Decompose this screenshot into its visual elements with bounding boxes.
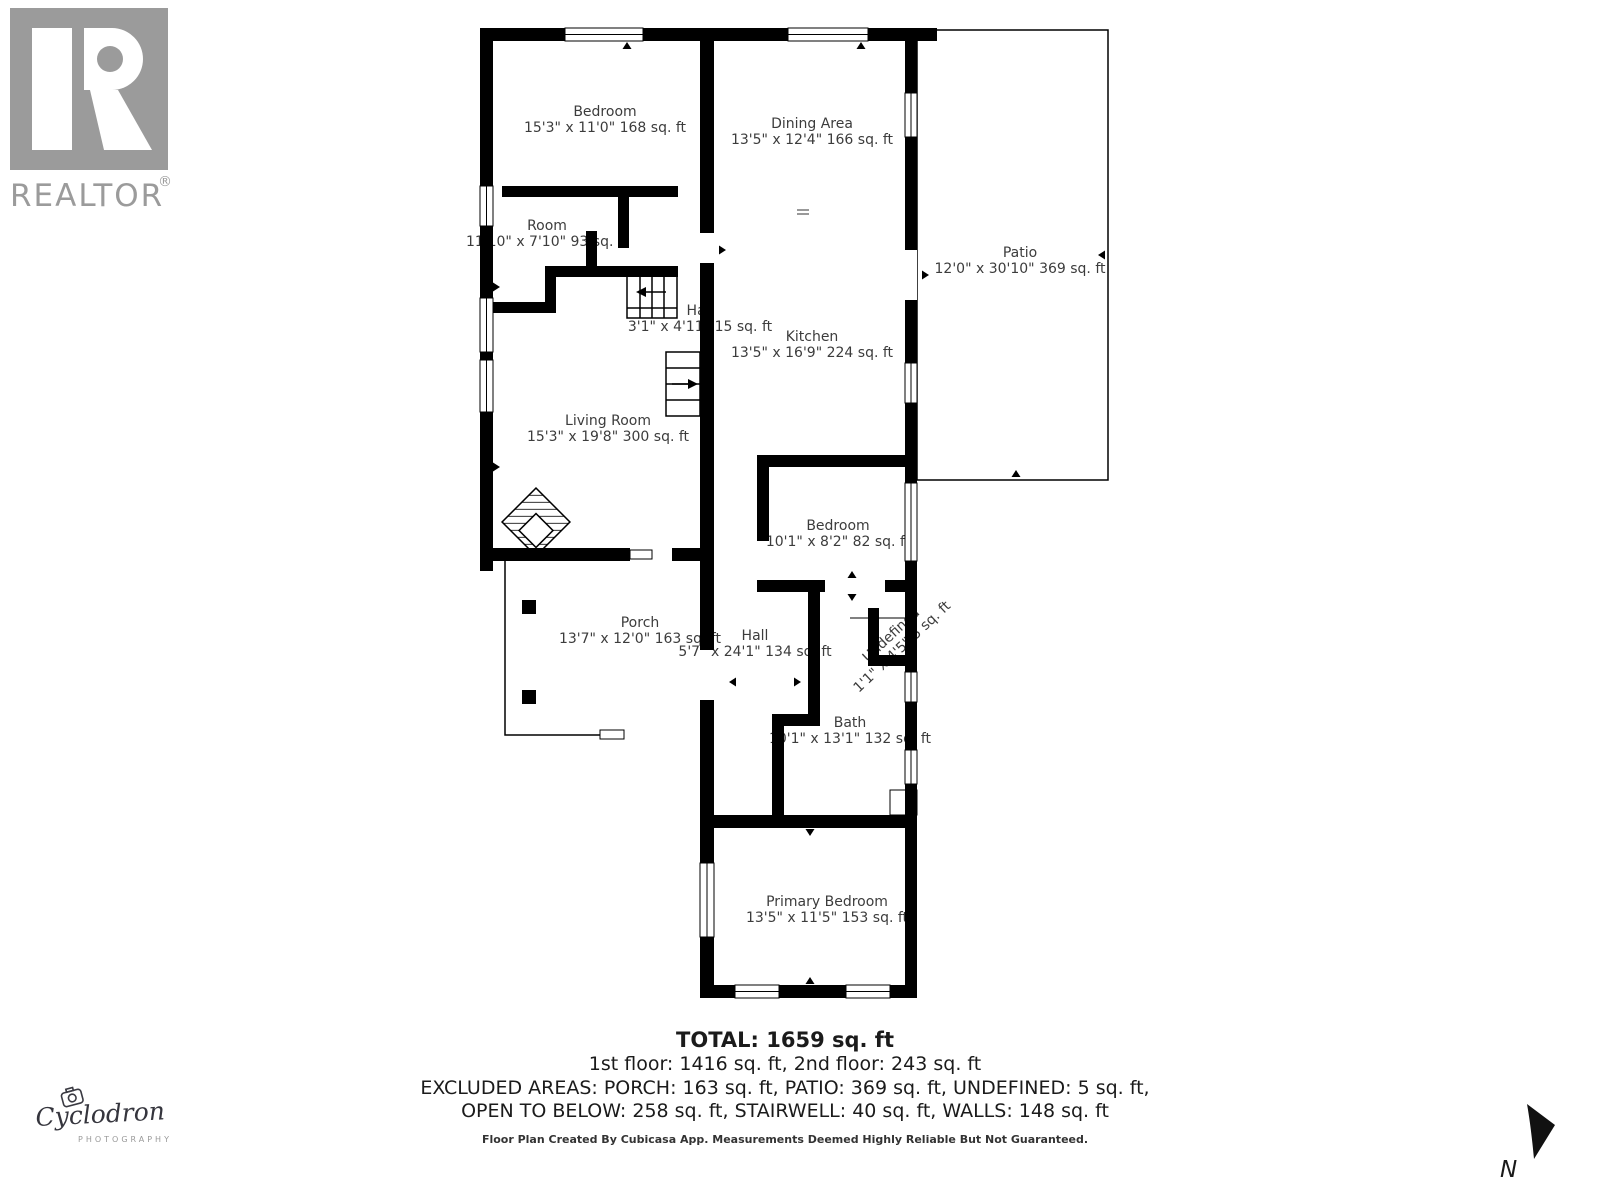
floor-plan: REALTOR ® Bedroom 15'3" x 11'0" 168 sq. … xyxy=(0,0,1600,1200)
total-area: TOTAL: 1659 sq. ft xyxy=(0,1028,1570,1053)
fireplace-icon xyxy=(502,488,570,556)
porch-outline xyxy=(505,561,600,735)
room-label-hall-1f: Hall xyxy=(742,628,769,644)
realtor-logo: REALTOR ® xyxy=(10,8,172,214)
room-dims-kitchen: 13'5" x 16'9" 224 sq. ft xyxy=(731,345,894,361)
room-label-room-2f: Room xyxy=(527,218,567,234)
room-dims-bedroom-2f: 15'3" x 11'0" 168 sq. ft xyxy=(524,120,687,136)
north-label: N xyxy=(1500,1157,1517,1183)
area-summary: TOTAL: 1659 sq. ft 1st floor: 1416 sq. f… xyxy=(0,1028,1570,1124)
stairs-direction-arrow xyxy=(636,287,646,297)
room-label-primary-bedroom: Primary Bedroom xyxy=(766,894,888,910)
excluded-areas-1: EXCLUDED AREAS: PORCH: 163 sq. ft, PATIO… xyxy=(0,1077,1570,1101)
room-label-dining: Dining Area xyxy=(771,116,853,132)
room-label-bedroom-2f: Bedroom xyxy=(573,104,636,120)
room-label-porch: Porch xyxy=(621,615,660,631)
room-dims-bedroom-1f: 10'1" x 8'2" 82 sq. ft xyxy=(766,534,911,550)
door-leaf xyxy=(630,550,652,559)
excluded-areas-2: OPEN TO BELOW: 258 sq. ft, STAIRWELL: 40… xyxy=(0,1100,1570,1124)
floor-plan-page: REALTOR ® Bedroom 15'3" x 11'0" 168 sq. … xyxy=(0,0,1600,1200)
room-dims-primary-bedroom: 13'5" x 11'5" 153 sq. ft xyxy=(746,910,909,926)
registered-trademark-icon: ® xyxy=(158,174,172,190)
door-markers xyxy=(493,42,1105,984)
staircase-lower xyxy=(666,352,700,416)
disclaimer: Floor Plan Created By Cubicasa App. Meas… xyxy=(0,1133,1570,1146)
room-label-bath: Bath xyxy=(834,715,867,731)
realtor-wordmark: REALTOR xyxy=(10,178,164,214)
room-dims-dining: 13'5" x 12'4" 166 sq. ft xyxy=(731,132,894,148)
room-label-living-room: Living Room xyxy=(565,413,651,429)
room-label-undefined-group: Undefined 1'1" x 4'5" 5 sq. ft xyxy=(840,586,955,696)
room-label-bedroom-1f: Bedroom xyxy=(806,518,869,534)
room-label-patio: Patio xyxy=(1003,245,1037,261)
stairs-direction-arrow xyxy=(688,379,698,389)
vent-icon xyxy=(797,210,809,214)
room-dims-patio: 12'0" x 30'10" 369 sq. ft xyxy=(935,261,1106,277)
door-leaf xyxy=(600,730,624,739)
room-label-kitchen: Kitchen xyxy=(786,329,839,345)
patio-door-opening xyxy=(905,250,917,300)
floor-areas: 1st floor: 1416 sq. ft, 2nd floor: 243 s… xyxy=(0,1053,1570,1077)
porch-posts xyxy=(522,600,536,704)
room-dims-living-room: 15'3" x 19'8" 300 sq. ft xyxy=(527,429,690,445)
